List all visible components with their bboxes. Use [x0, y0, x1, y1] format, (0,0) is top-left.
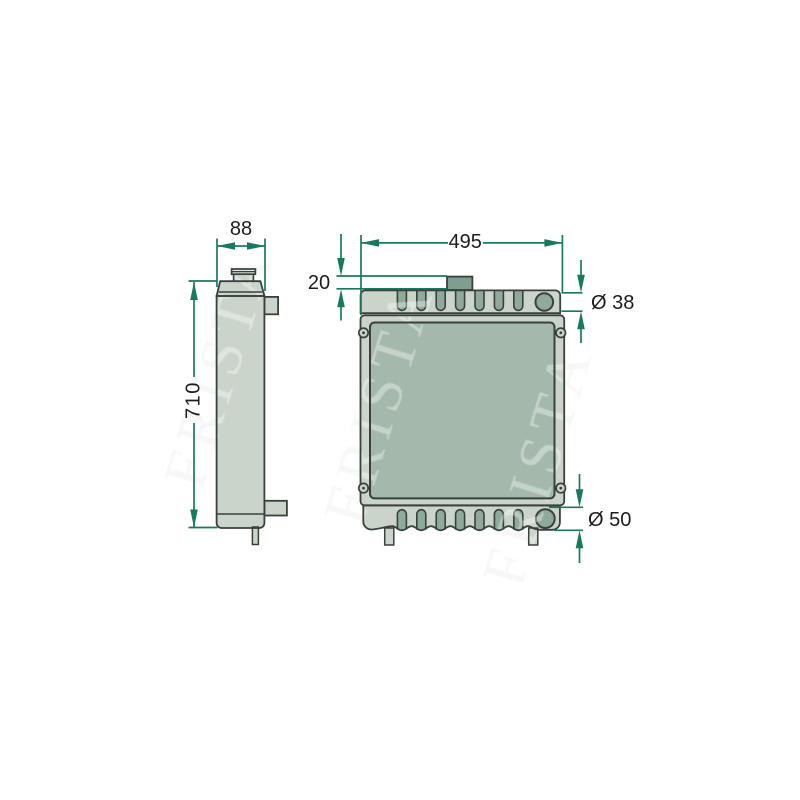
svg-text:20: 20: [308, 272, 330, 294]
svg-text:88: 88: [230, 218, 252, 240]
svg-text:Ø 38: Ø 38: [591, 292, 634, 314]
svg-text:710: 710: [183, 381, 205, 419]
svg-text:Ø 50: Ø 50: [588, 509, 631, 531]
svg-text:495: 495: [449, 231, 482, 253]
